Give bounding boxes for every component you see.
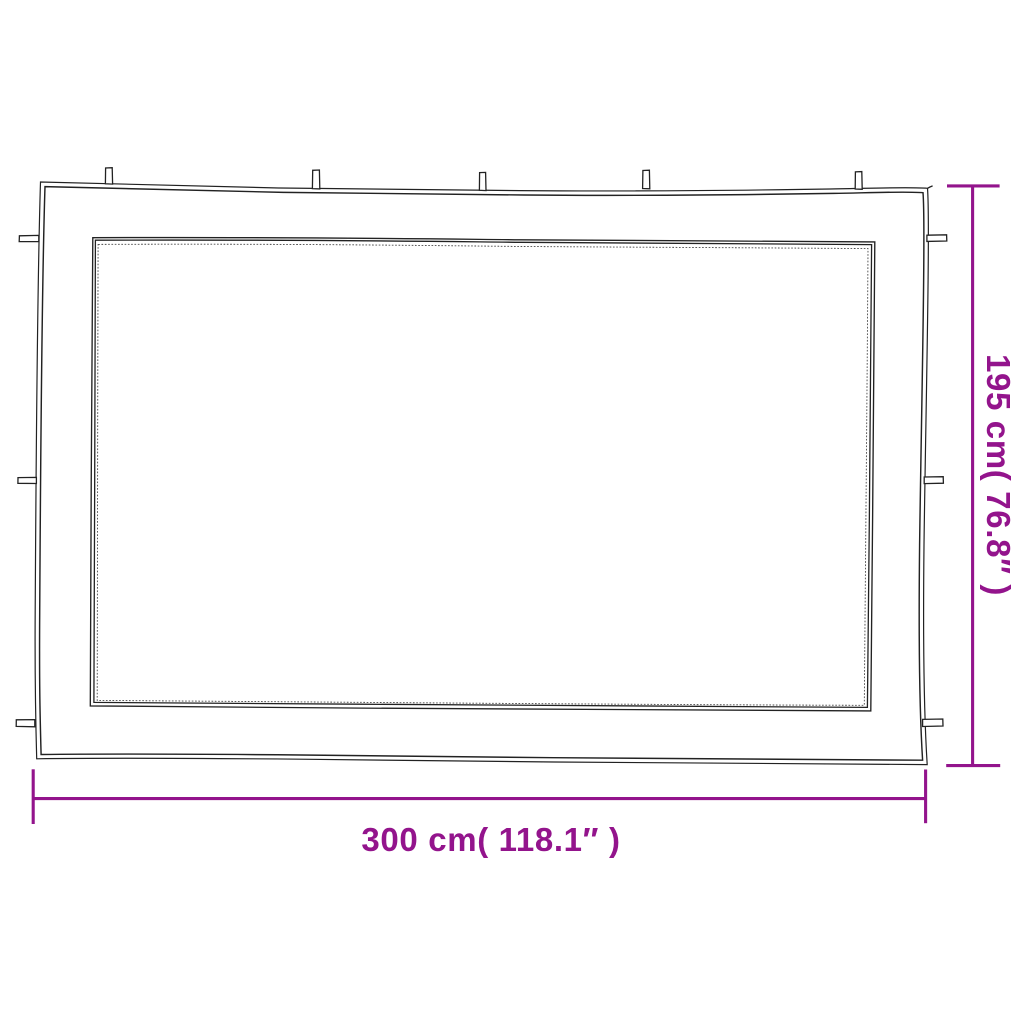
svg-text:195 cm( 76.8″ ): 195 cm( 76.8″ ) (980, 354, 1017, 596)
svg-text:300 cm( 118.1″ ): 300 cm( 118.1″ ) (361, 821, 620, 858)
